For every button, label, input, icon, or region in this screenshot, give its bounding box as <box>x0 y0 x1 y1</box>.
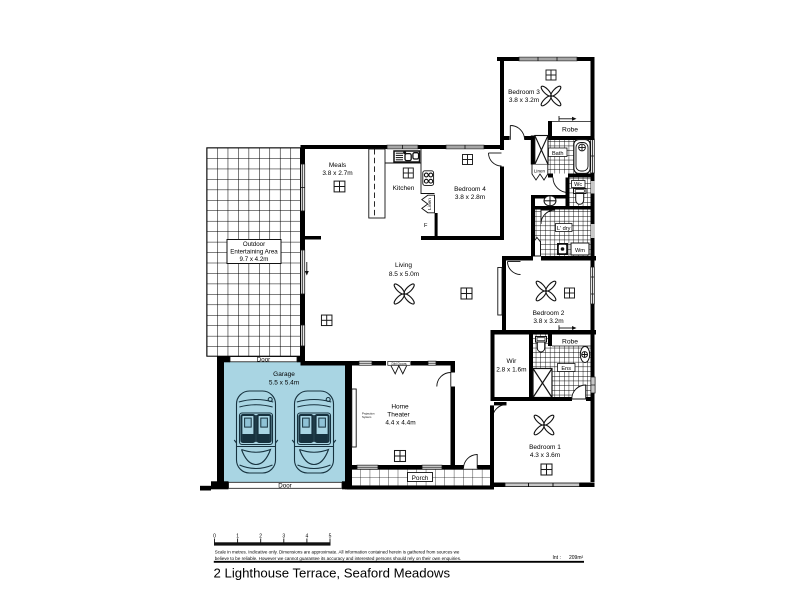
svg-text:Outdoor: Outdoor <box>243 241 265 248</box>
svg-text:Scale in metres. Indicative on: Scale in metres. Indicative only. Dimens… <box>215 549 460 554</box>
svg-text:Int :: Int : <box>553 555 561 561</box>
svg-text:Kitchen: Kitchen <box>393 185 415 192</box>
svg-text:believe to be reliable. Howeve: believe to be reliable. However we canno… <box>215 556 461 561</box>
svg-text:Door: Door <box>278 483 291 490</box>
svg-text:8.5 x 5.0m: 8.5 x 5.0m <box>389 271 419 278</box>
svg-text:F: F <box>424 223 428 229</box>
svg-text:5.5 x 5.4m: 5.5 x 5.4m <box>269 380 299 387</box>
svg-text:Home: Home <box>391 404 409 411</box>
svg-text:Bedroom 1: Bedroom 1 <box>529 444 561 451</box>
svg-text:Bedroom 2: Bedroom 2 <box>533 310 565 317</box>
svg-text:Wc: Wc <box>574 182 582 188</box>
svg-text:4.3 x 3.6m: 4.3 x 3.6m <box>530 452 560 459</box>
svg-text:Porch: Porch <box>412 475 429 482</box>
svg-text:Ens: Ens <box>561 366 571 372</box>
svg-text:3.8 x 2.8m: 3.8 x 2.8m <box>455 194 485 201</box>
svg-text:Linen: Linen <box>427 198 433 210</box>
svg-text:Entertaining Area: Entertaining Area <box>230 248 278 255</box>
svg-text:Door: Door <box>257 356 270 363</box>
svg-text:Theater: Theater <box>387 412 410 419</box>
svg-text:System: System <box>362 415 372 419</box>
svg-text:Meals: Meals <box>329 162 347 169</box>
svg-text:209m²: 209m² <box>569 555 584 561</box>
svg-text:Dbl Doors: Dbl Doors <box>391 362 406 366</box>
svg-text:Garage: Garage <box>273 371 295 378</box>
svg-text:L' dry: L' dry <box>557 226 571 232</box>
svg-text:Wir: Wir <box>507 358 518 365</box>
svg-text:Robe: Robe <box>562 127 578 134</box>
svg-text:3.8 x 3.2m: 3.8 x 3.2m <box>533 318 563 325</box>
svg-text:Bath: Bath <box>552 151 564 157</box>
svg-text:9.7 x 4.2m: 9.7 x 4.2m <box>240 256 269 263</box>
svg-text:4.4 x 4.4m: 4.4 x 4.4m <box>385 420 415 427</box>
svg-text:Linen: Linen <box>534 169 546 174</box>
svg-text:Bedroom 3: Bedroom 3 <box>508 89 540 96</box>
svg-text:2.8 x 1.6m: 2.8 x 1.6m <box>496 366 526 373</box>
svg-text:3.8 x 2.7m: 3.8 x 2.7m <box>322 170 352 177</box>
svg-text:Living: Living <box>395 262 412 269</box>
svg-text:3.8 x 3.2m: 3.8 x 3.2m <box>509 97 539 104</box>
svg-text:Robe: Robe <box>562 339 578 346</box>
svg-text:Wm: Wm <box>575 248 585 254</box>
svg-text:Bedroom 4: Bedroom 4 <box>454 186 486 193</box>
svg-text:2 Lighthouse Terrace, Seaford: 2 Lighthouse Terrace, Seaford Meadows <box>214 566 451 581</box>
